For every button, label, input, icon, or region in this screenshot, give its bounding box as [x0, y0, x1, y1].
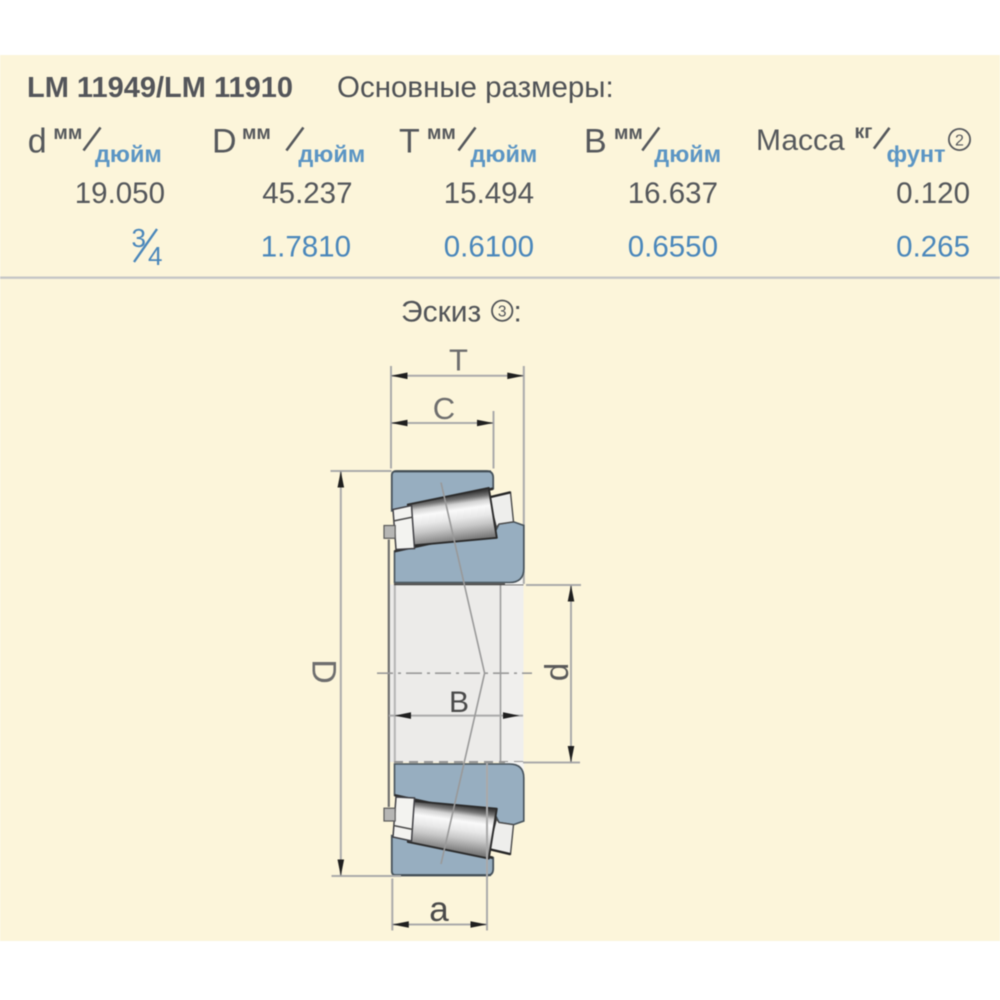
svg-text:мм: мм	[53, 122, 82, 144]
svg-text:Эскиз: Эскиз	[401, 296, 481, 329]
svg-text:D: D	[212, 123, 237, 161]
svg-text:дюйм: дюйм	[298, 141, 365, 167]
svg-text:19.050: 19.050	[75, 177, 165, 210]
svg-text:0.6550: 0.6550	[628, 231, 718, 264]
svg-text:16.637: 16.637	[628, 177, 718, 210]
svg-text:T: T	[399, 123, 420, 161]
svg-text:мм: мм	[242, 122, 271, 144]
svg-text:d: d	[538, 663, 575, 681]
svg-text:Масса: Масса	[756, 124, 845, 157]
svg-text:0.6100: 0.6100	[444, 231, 534, 264]
svg-text:2: 2	[955, 133, 964, 150]
svg-text:C: C	[433, 391, 455, 426]
svg-text:D: D	[305, 659, 343, 684]
svg-text:15.494: 15.494	[444, 177, 534, 210]
svg-text::: :	[514, 296, 522, 329]
svg-text:4: 4	[148, 241, 162, 271]
svg-text:кг: кг	[855, 121, 873, 143]
svg-text:45.237: 45.237	[262, 177, 352, 210]
svg-text:0.120: 0.120	[896, 177, 970, 210]
svg-text:дюйм: дюйм	[95, 141, 162, 167]
svg-text:дюйм: дюйм	[471, 141, 538, 167]
svg-text:Основные размеры:: Основные размеры:	[337, 71, 614, 104]
svg-text:фунт: фунт	[887, 141, 946, 167]
svg-text:a: a	[429, 890, 449, 929]
svg-text:B: B	[584, 123, 607, 161]
svg-text:T: T	[449, 343, 468, 378]
svg-text:дюйм: дюйм	[654, 141, 721, 167]
svg-text:0.265: 0.265	[896, 231, 970, 264]
svg-text:LM 11949/LM 11910: LM 11949/LM 11910	[27, 72, 293, 104]
svg-text:1.7810: 1.7810	[261, 231, 351, 264]
svg-text:3: 3	[498, 304, 507, 321]
svg-text:d: d	[28, 123, 47, 161]
svg-text:мм: мм	[614, 122, 643, 144]
svg-text:B: B	[449, 686, 469, 719]
svg-text:мм: мм	[427, 122, 456, 144]
